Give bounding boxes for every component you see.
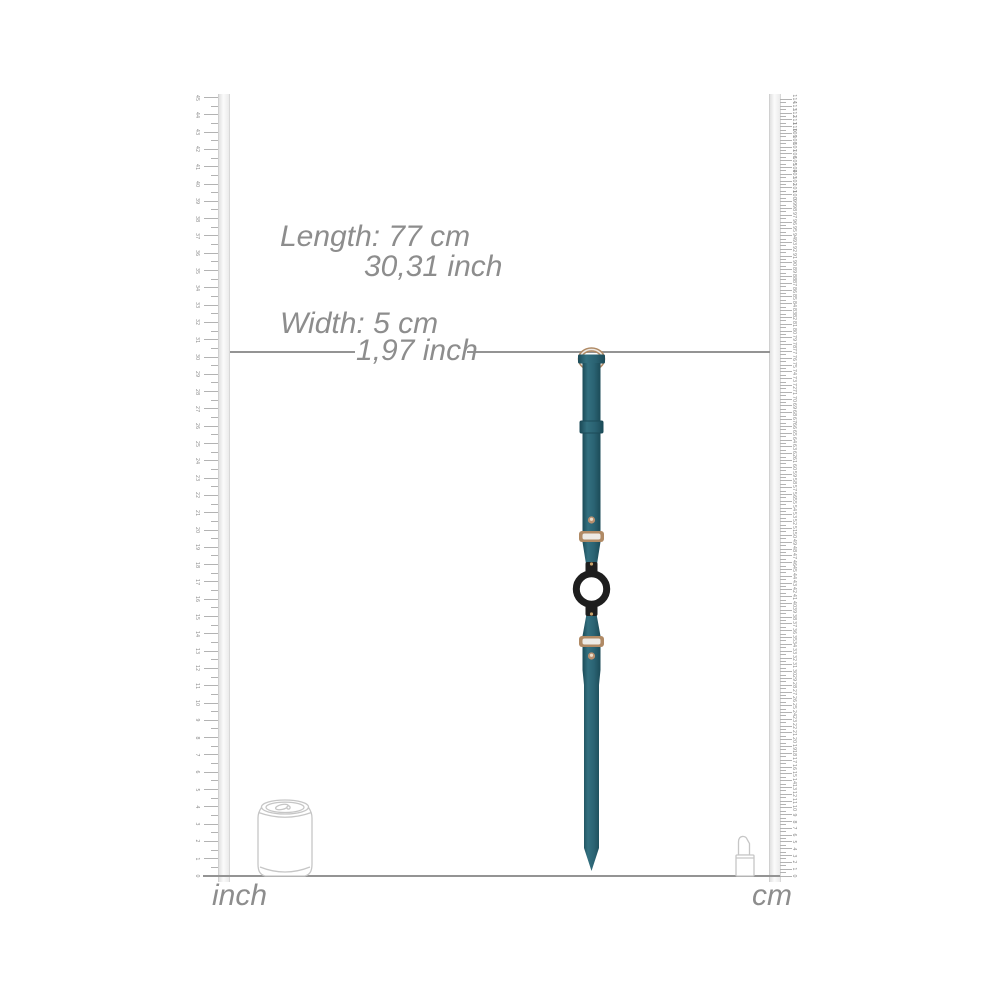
right-ruler-halftick [780, 273, 786, 274]
tab-pin-top [590, 562, 593, 565]
rivet-bottom [588, 652, 595, 659]
right-ruler-halftick [780, 395, 786, 396]
cm-unit-label: cm [752, 879, 792, 913]
left-ruler-number: 13 [194, 644, 200, 658]
left-ruler-tick [204, 253, 218, 254]
left-ruler-number: 19 [194, 540, 200, 554]
left-ruler-halftick [211, 780, 218, 781]
right-ruler-halftick [780, 858, 786, 859]
left-ruler-number: 32 [194, 315, 200, 329]
left-ruler-tick [204, 132, 218, 133]
right-ruler-halftick [780, 709, 786, 710]
right-ruler-halftick [780, 756, 786, 757]
right-ruler-halftick [780, 314, 786, 315]
right-ruler-halftick [780, 777, 786, 778]
left-ruler-tick [204, 581, 218, 582]
right-ruler-halftick [780, 327, 786, 328]
left-ruler-number: 44 [194, 108, 200, 122]
right-ruler-halftick [780, 279, 786, 280]
left-ruler-number: 18 [194, 558, 200, 572]
right-ruler-halftick [780, 307, 786, 308]
tab-pin-bottom [590, 612, 593, 615]
right-ruler-halftick [780, 225, 786, 226]
left-ruler-number: 27 [194, 402, 200, 416]
right-ruler-halftick [780, 170, 786, 171]
left-ruler-halftick [211, 486, 218, 487]
left-ruler-number: 2 [194, 834, 200, 848]
left-ruler-tick [204, 149, 218, 150]
right-ruler-halftick [780, 702, 786, 703]
right-ruler-halftick [780, 388, 786, 389]
right-ruler-halftick [780, 423, 786, 424]
right-ruler-halftick [780, 640, 786, 641]
left-ruler-number: 0 [194, 869, 200, 883]
length-metric-label: Length: 77 cm [280, 221, 470, 253]
left-ruler-number: 8 [194, 731, 200, 745]
right-ruler-number: 114 [791, 92, 797, 106]
right-ruler-halftick [780, 334, 786, 335]
right-ruler-halftick [780, 150, 786, 151]
right-ruler-halftick [780, 552, 786, 553]
right-ruler-halftick [780, 252, 786, 253]
left-ruler-number: 11 [194, 679, 200, 693]
left-ruler-number: 34 [194, 281, 200, 295]
right-ruler-halftick [780, 123, 786, 124]
left-ruler-number: 9 [194, 713, 200, 727]
right-ruler-halftick [780, 348, 786, 349]
left-ruler-halftick [211, 400, 218, 401]
left-ruler-number: 39 [194, 194, 200, 208]
rivet-top [588, 516, 595, 523]
left-ruler-number: 16 [194, 592, 200, 606]
left-ruler-halftick [211, 331, 218, 332]
right-ruler-halftick [780, 402, 786, 403]
right-ruler-halftick [780, 872, 786, 873]
left-ruler-halftick [211, 573, 218, 574]
left-ruler-halftick [211, 227, 218, 228]
right-ruler-halftick [780, 715, 786, 716]
left-ruler-halftick [211, 417, 218, 418]
left-ruler-halftick [211, 642, 218, 643]
left-ruler-tick [204, 218, 218, 219]
right-ruler-halftick [780, 232, 786, 233]
right-ruler-halftick [780, 300, 786, 301]
left-ruler-number: 30 [194, 350, 200, 364]
right-ruler-halftick [780, 654, 786, 655]
right-ruler-halftick [780, 572, 786, 573]
left-ruler-tick [204, 512, 218, 513]
left-ruler-halftick [211, 469, 218, 470]
left-ruler-halftick [211, 452, 218, 453]
left-ruler-tick [204, 703, 218, 704]
left-ruler-halftick [211, 192, 218, 193]
left-ruler-tick [204, 408, 218, 409]
left-ruler-number: 6 [194, 765, 200, 779]
left-ruler-tick [204, 616, 218, 617]
left-ruler-halftick [211, 140, 218, 141]
left-ruler-tick [204, 305, 218, 306]
right-ruler-halftick [780, 266, 786, 267]
right-ruler-halftick [780, 375, 786, 376]
left-ruler-halftick [211, 279, 218, 280]
right-ruler-halftick [780, 491, 786, 492]
right-ruler-halftick [780, 136, 786, 137]
right-ruler-halftick [780, 634, 786, 635]
left-ruler-tick [204, 772, 218, 773]
right-ruler-halftick [780, 191, 786, 192]
left-ruler-number: 1 [194, 852, 200, 866]
left-ruler-halftick [211, 521, 218, 522]
right-ruler-halftick [780, 525, 786, 526]
right-ruler-halftick [780, 729, 786, 730]
left-ruler-halftick [211, 296, 218, 297]
left-ruler-halftick [211, 677, 218, 678]
soda-can-icon [253, 796, 317, 880]
left-ruler-halftick [211, 832, 218, 833]
right-ruler-halftick [780, 790, 786, 791]
left-ruler-halftick [211, 261, 218, 262]
left-ruler-tick [204, 443, 218, 444]
right-ruler-halftick [780, 504, 786, 505]
left-ruler-number: 12 [194, 661, 200, 675]
right-ruler-halftick [780, 593, 786, 594]
left-ruler-tick [204, 339, 218, 340]
left-ruler-tick [204, 651, 218, 652]
left-ruler-tick [204, 754, 218, 755]
left-ruler-number: 33 [194, 298, 200, 312]
left-ruler-tick [204, 478, 218, 479]
right-ruler-halftick [780, 831, 786, 832]
left-ruler-halftick [211, 763, 218, 764]
left-ruler-halftick [211, 538, 218, 539]
left-ruler-tick [204, 184, 218, 185]
right-ruler-halftick [780, 484, 786, 485]
left-ruler-tick [204, 357, 218, 358]
left-ruler-tick [204, 789, 218, 790]
left-ruler-halftick [211, 850, 218, 851]
left-ruler-number: 5 [194, 783, 200, 797]
right-ruler-halftick [780, 566, 786, 567]
left-ruler-number: 10 [194, 696, 200, 710]
right-ruler-halftick [780, 559, 786, 560]
right-ruler-halftick [780, 416, 786, 417]
left-ruler-halftick [211, 348, 218, 349]
right-ruler-halftick [780, 763, 786, 764]
right-ruler-halftick [780, 143, 786, 144]
right-ruler-halftick [780, 627, 786, 628]
left-ruler-halftick [211, 711, 218, 712]
right-ruler-halftick [780, 218, 786, 219]
left-ruler-tick [204, 824, 218, 825]
right-ruler-halftick [780, 320, 786, 321]
left-ruler-number: 21 [194, 506, 200, 520]
right-ruler-halftick [780, 736, 786, 737]
left-ruler-number: 38 [194, 212, 200, 226]
left-ruler-number: 3 [194, 817, 200, 831]
left-ruler-number: 36 [194, 246, 200, 260]
right-ruler-halftick [780, 749, 786, 750]
right-ruler-halftick [780, 613, 786, 614]
right-ruler-halftick [780, 116, 786, 117]
left-ruler-halftick [211, 365, 218, 366]
right-ruler-halftick [780, 239, 786, 240]
right-ruler-halftick [780, 497, 786, 498]
left-ruler-halftick [211, 815, 218, 816]
left-ruler-number: 4 [194, 800, 200, 814]
right-ruler-halftick [780, 511, 786, 512]
left-ruler-tick [204, 201, 218, 202]
left-ruler-number: 26 [194, 419, 200, 433]
right-ruler-halftick [780, 382, 786, 383]
left-ruler-number: 41 [194, 160, 200, 174]
left-ruler-number: 23 [194, 471, 200, 485]
left-ruler-number: 45 [194, 91, 200, 105]
left-ruler-halftick [211, 106, 218, 107]
left-ruler-halftick [211, 694, 218, 695]
width-marker-line-left [230, 351, 355, 353]
left-ruler-tick [204, 858, 218, 859]
right-ruler-halftick [780, 661, 786, 662]
left-ruler-halftick [211, 659, 218, 660]
left-ruler-tick [204, 166, 218, 167]
right-ruler-halftick [780, 109, 786, 110]
right-ruler-halftick [780, 647, 786, 648]
slider-buckle-top [579, 531, 604, 542]
right-ruler-halftick [780, 463, 786, 464]
right-ruler-halftick [780, 470, 786, 471]
right-ruler-halftick [780, 102, 786, 103]
left-ruler-tick [204, 97, 218, 98]
right-ruler-halftick [780, 211, 786, 212]
left-ruler-number: 29 [194, 367, 200, 381]
left-ruler-number: 17 [194, 575, 200, 589]
left-ruler-number: 25 [194, 437, 200, 451]
right-ruler-halftick [780, 259, 786, 260]
right-ruler-halftick [780, 797, 786, 798]
left-ruler-number: 40 [194, 177, 200, 191]
left-ruler-halftick [211, 313, 218, 314]
right-ruler-halftick [780, 688, 786, 689]
left-ruler-tick [204, 530, 218, 531]
left-ruler-halftick [211, 123, 218, 124]
right-ruler-halftick [780, 845, 786, 846]
right-ruler-halftick [780, 457, 786, 458]
right-ruler-halftick [780, 368, 786, 369]
left-ruler-halftick [211, 382, 218, 383]
right-ruler-halftick [780, 579, 786, 580]
left-ruler-halftick [211, 798, 218, 799]
o-ring [576, 574, 606, 604]
width-imperial-label: 1,97 inch [356, 335, 478, 367]
left-ruler-halftick [211, 504, 218, 505]
right-ruler-halftick [780, 157, 786, 158]
right-ruler-halftick [780, 818, 786, 819]
right-ruler-halftick [780, 198, 786, 199]
right-ruler-halftick [780, 586, 786, 587]
right-ruler-halftick [780, 164, 786, 165]
right-ruler-halftick [780, 681, 786, 682]
left-ruler-tick [204, 668, 218, 669]
left-ruler-halftick [211, 434, 218, 435]
right-ruler-halftick [780, 620, 786, 621]
right-ruler-halftick [780, 205, 786, 206]
left-ruler-halftick [211, 590, 218, 591]
right-ruler-halftick [780, 450, 786, 451]
right-ruler-halftick [780, 668, 786, 669]
right-ruler-halftick [780, 784, 786, 785]
left-ruler-halftick [211, 607, 218, 608]
right-ruler-halftick [780, 361, 786, 362]
left-ruler-number: 20 [194, 523, 200, 537]
right-ruler-halftick [780, 184, 786, 185]
right-ruler-halftick [780, 477, 786, 478]
right-ruler-halftick [780, 518, 786, 519]
right-ruler-halftick [780, 804, 786, 805]
left-ruler-tick [204, 114, 218, 115]
left-ruler-halftick [211, 158, 218, 159]
left-ruler-halftick [211, 625, 218, 626]
left-ruler-number: 7 [194, 748, 200, 762]
left-ruler-halftick [211, 244, 218, 245]
slider-buckle-bottom [579, 636, 604, 647]
left-ruler-halftick [211, 555, 218, 556]
left-ruler-number: 15 [194, 610, 200, 624]
right-ruler-halftick [780, 722, 786, 723]
left-ruler-number: 24 [194, 454, 200, 468]
keeper-loop [580, 421, 603, 433]
right-ruler-halftick [780, 852, 786, 853]
left-ruler-number: 28 [194, 385, 200, 399]
right-ruler-halftick [780, 675, 786, 676]
left-ruler-halftick [211, 175, 218, 176]
right-ruler-halftick [780, 865, 786, 866]
length-imperial-label: 30,31 inch [364, 251, 502, 283]
left-ruler-halftick [211, 209, 218, 210]
left-ruler-tick [204, 685, 218, 686]
left-ruler-tick [204, 460, 218, 461]
right-ruler-halftick [780, 429, 786, 430]
left-ruler-tick [204, 547, 218, 548]
right-ruler-halftick [780, 531, 786, 532]
left-ruler-tick [204, 737, 218, 738]
right-ruler-halftick [780, 606, 786, 607]
left-ruler-halftick [211, 746, 218, 747]
left-ruler-tick [204, 841, 218, 842]
right-ruler-halftick [780, 695, 786, 696]
right-ruler-halftick [780, 743, 786, 744]
left-ruler-tick [204, 806, 218, 807]
left-ruler-tick [204, 564, 218, 565]
left-ruler-number: 37 [194, 229, 200, 243]
right-ruler-halftick [780, 600, 786, 601]
right-ruler-halftick [780, 245, 786, 246]
lipstick-icon [730, 833, 760, 879]
left-ruler-number: 31 [194, 333, 200, 347]
buckle-strap-bar [578, 355, 605, 364]
left-ruler-tick [204, 599, 218, 600]
right-ruler-halftick [780, 443, 786, 444]
right-ruler-halftick [780, 354, 786, 355]
left-ruler-number: 43 [194, 125, 200, 139]
right-ruler-halftick [780, 341, 786, 342]
inch-unit-label: inch [212, 879, 267, 913]
left-ruler-tick [204, 374, 218, 375]
right-ruler-halftick [780, 286, 786, 287]
product-size-diagram: 0123456789101112131415161718192021222324… [0, 0, 1000, 1000]
left-ruler-tick [204, 633, 218, 634]
left-ruler-tick [204, 322, 218, 323]
right-ruler-halftick [780, 130, 786, 131]
left-ruler-tick [204, 426, 218, 427]
left-ruler-number: 14 [194, 627, 200, 641]
inch-ruler [218, 94, 230, 882]
right-ruler-halftick [780, 545, 786, 546]
left-ruler-halftick [211, 728, 218, 729]
left-ruler-tick [204, 495, 218, 496]
right-ruler-halftick [780, 436, 786, 437]
right-ruler-halftick [780, 409, 786, 410]
left-ruler-tick [204, 720, 218, 721]
right-ruler-halftick [780, 838, 786, 839]
left-ruler-halftick [211, 867, 218, 868]
right-ruler-halftick [780, 293, 786, 294]
left-ruler-number: 42 [194, 142, 200, 156]
left-ruler-tick [204, 270, 218, 271]
left-ruler-tick [204, 391, 218, 392]
left-ruler-tick [204, 235, 218, 236]
product-strap [556, 340, 628, 880]
right-ruler-halftick [780, 770, 786, 771]
left-ruler-number: 22 [194, 488, 200, 502]
right-ruler-halftick [780, 824, 786, 825]
right-ruler-halftick [780, 538, 786, 539]
left-ruler-tick [204, 287, 218, 288]
right-ruler-halftick [780, 177, 786, 178]
left-ruler-number: 35 [194, 264, 200, 278]
right-ruler-halftick [780, 811, 786, 812]
